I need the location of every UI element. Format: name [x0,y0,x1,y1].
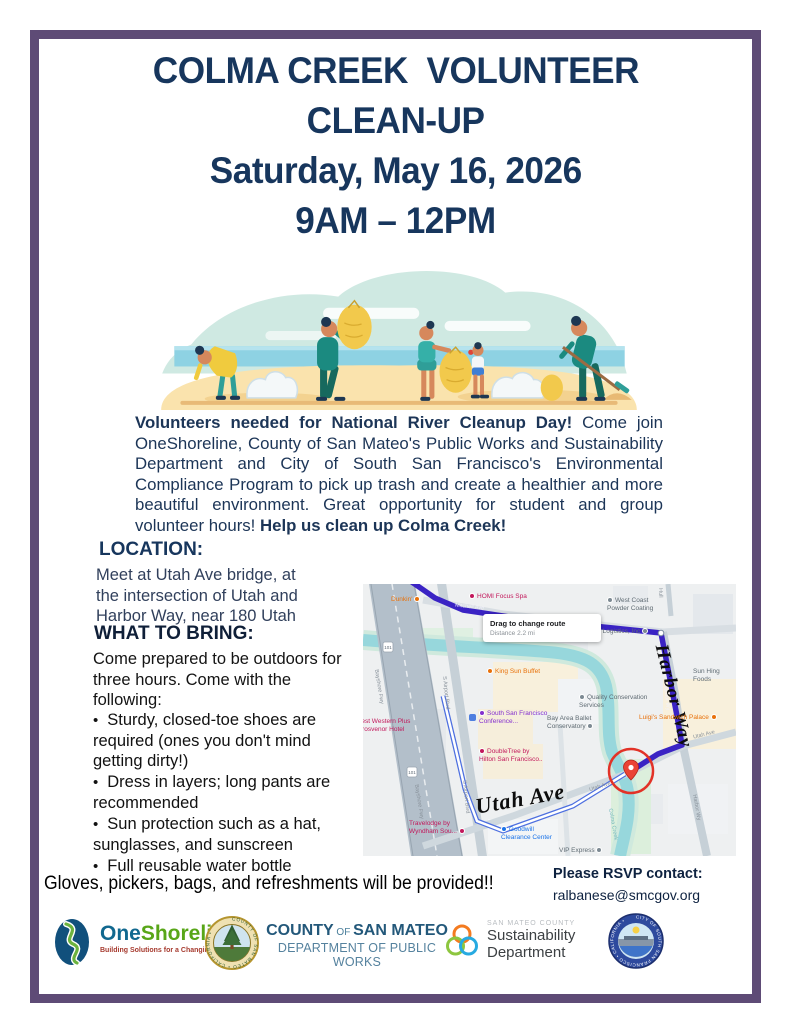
list-item: Sturdy, closed-toe shoes are required (o… [93,710,355,771]
san-mateo-county-seal-icon: COUNTY OF SAN MATEO • CALIFORNIA • [205,916,259,975]
poi-dot-icon [414,596,420,602]
poi-label: South San Francisco Conference... [479,710,547,725]
county-dpw-wordmark: COUNTY OF SAN MATEO DEPARTMENT OF PUBLIC… [262,922,452,969]
what-to-bring-list: Sturdy, closed-toe shoes are required (o… [93,710,355,878]
poi-luigis: Luigi's Sandwich Palace [639,714,719,722]
location-text: Meet at Utah Ave bridge, at the intersec… [96,565,298,627]
partner-logos: OneShoreline Building Solutions for a Ch… [40,908,751,988]
svg-text:101: 101 [408,770,416,775]
poi-label: HOMI Focus Spa [477,593,527,600]
list-item: Sun protection such as a hat, sunglasses… [93,814,355,855]
route-map: 101 101 Bayshore Fwy Bayshore Fwy S Airp… [363,584,736,856]
ssf-city-seal-icon: CITY OF SOUTH SAN FRANCISCO • CALIFORNIA… [607,912,665,975]
poi-label: Bay Area Ballet Conservatory [547,715,591,730]
poi-label: Sun Hing Foods [693,668,720,683]
location-line: the intersection of Utah and [96,586,298,607]
cleanup-illustration [146,246,652,410]
route-tooltip[interactable]: Drag to change route Distance 2.2 mi [483,614,601,642]
rsvp-block: Please RSVP contact: ralbanese@smcgov.or… [553,866,703,903]
what-to-bring-heading: WHAT TO BRING: [94,623,254,645]
cleanup-illustration-art [146,246,652,410]
county-word: COUNTY [266,922,334,939]
poi-dunkin: Dunkin' [391,596,422,604]
sustainability-line1: Sustainability [487,927,575,944]
intro-bold-tail: Help us clean up Colma Creek! [260,516,506,535]
route-tooltip-distance: Distance 2.2 mi [490,630,594,637]
poi-label: DoubleTree by Hilton San Francisco.. [479,748,543,763]
small-yellow-bag [541,375,563,401]
intro-bold-lead: Volunteers needed for National River Cle… [135,413,572,432]
poi-label: King Sun Buffet [495,668,540,675]
road-label-hull: Hull [657,588,663,598]
poi-dot-icon [479,748,485,754]
poi-king-sun: King Sun Buffet [487,668,540,676]
poi-label: Luigi's Sandwich Palace [639,714,709,721]
poi-dot-icon [479,710,485,716]
oneshoreline-mark-icon [52,916,94,968]
title-block: COLMA CREEK VOLUNTEER CLEAN-UP Saturday,… [60,50,731,250]
poi-label: Quality Conservation Services [579,694,647,709]
list-item-text: Sun protection such as a hat, sunglasses… [93,815,321,854]
poi-homi-spa: HOMI Focus Spa [469,593,527,601]
svg-text:101: 101 [384,645,392,650]
poi-dot-icon [487,668,493,674]
title-line-1: COLMA CREEK VOLUNTEER [60,50,731,100]
route-tooltip-title: Drag to change route [490,619,594,628]
poi-label: Dunkin' [391,596,412,603]
rsvp-email: ralbanese@smcgov.org [553,887,703,903]
poi-dot-icon [587,723,593,729]
poi-west-coast: West Coast Powder Coating [607,597,653,612]
poi-hotel-left: Best Western Plus Grosvenor Hotel [363,718,423,733]
location-line: Meet at Utah Ave bridge, at [96,565,298,586]
list-item-text: Dress in layers; long pants are recommen… [93,773,330,812]
flyer-page: COLMA CREEK VOLUNTEER CLEAN-UP Saturday,… [0,0,791,1024]
list-item: Dress in layers; long pants are recommen… [93,772,355,813]
poi-dot-icon [459,828,465,834]
poi-ballet: Bay Area Ballet Conservatory [547,715,595,730]
sustainability-rings-icon [445,923,479,959]
poi-label: VIP Express [559,847,595,854]
county-name: SAN MATEO [353,922,448,939]
poi-label: Travelodge by Wyndham Sou... [409,820,457,835]
poi-label: Goodwill Clearance Center [501,826,552,841]
location-heading: LOCATION: [99,539,203,561]
poi-dot-icon [501,826,507,832]
sustainability-text: SAN MATEO COUNTY Sustainability Departme… [487,920,575,961]
transit-stop-icon [469,714,476,721]
route-waypoint-dot [658,630,664,636]
poi-doubletree: DoubleTree by Hilton San Francisco.. [479,748,543,763]
county-dept-line: DEPARTMENT OF PUBLIC WORKS [262,941,452,969]
poi-dot-icon [642,628,648,634]
sustainability-county-line: SAN MATEO COUNTY [487,920,575,927]
title-line-4: 9AM – 12PM [60,200,731,250]
title-line-2: CLEAN-UP [60,100,731,150]
poi-dot-icon [607,597,613,603]
county-of: OF [334,927,353,938]
poi-label: Best Western Plus Grosvenor Hotel [363,718,410,733]
list-item-text: Sturdy, closed-toe shoes are required (o… [93,711,316,770]
poi-sun-hing: Sun Hing Foods [693,668,736,683]
sustainability-logo: SAN MATEO COUNTY Sustainability Departme… [445,920,575,961]
provided-note: Gloves, pickers, bags, and refreshments … [44,872,544,895]
poi-ssf-conference: South San Francisco Conference... [479,710,547,725]
poi-quality-conservation: Quality Conservation Services [579,694,647,709]
title-line-3: Saturday, May 16, 2026 [60,150,731,200]
poi-goodwill: Goodwill Clearance Center [501,826,552,841]
oneshoreline-one: One [100,922,141,945]
poi-dot-icon [596,847,602,853]
poi-vip-express: VIP Express [559,847,604,855]
sustainability-line2: Department [487,944,575,961]
rsvp-label: Please RSVP contact: [553,866,703,882]
poi-dot-icon [711,714,717,720]
poi-dot-icon [579,694,585,700]
intro-paragraph: Volunteers needed for National River Cle… [135,413,663,536]
poi-label: West Coast Powder Coating [607,597,653,612]
what-to-bring-intro: Come prepared to be outdoors for three h… [93,649,351,711]
poi-travelodge: Travelodge by Wyndham Sou... [409,820,467,835]
poi-dot-icon [469,593,475,599]
